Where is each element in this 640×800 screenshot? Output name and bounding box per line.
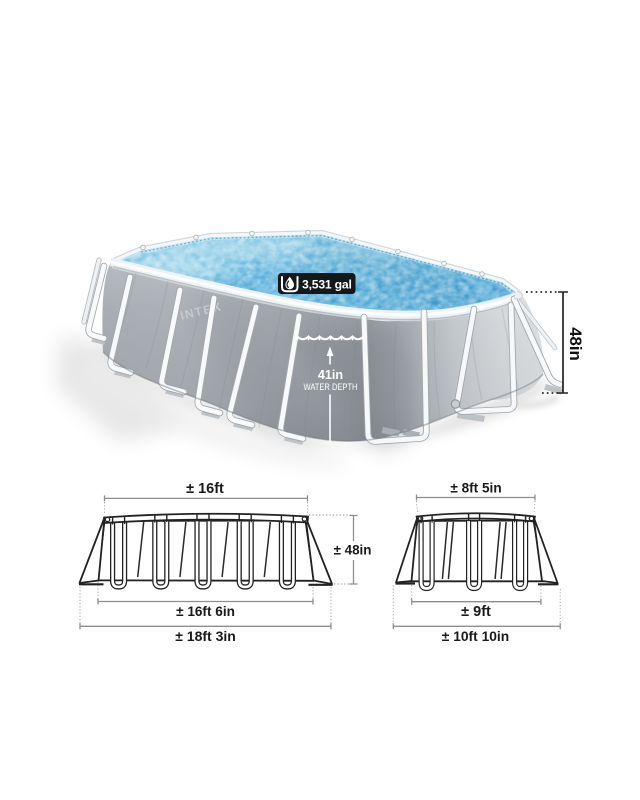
svg-text:± 9ft: ± 9ft xyxy=(461,604,491,620)
svg-text:48in: 48in xyxy=(566,327,585,361)
svg-text:WATER DEPTH: WATER DEPTH xyxy=(304,382,358,392)
svg-text:± 10ft 10in: ± 10ft 10in xyxy=(442,629,509,644)
svg-text:± 16ft 6in: ± 16ft 6in xyxy=(176,604,235,619)
svg-text:3,531 gal: 3,531 gal xyxy=(302,278,352,292)
svg-text:± 48in: ± 48in xyxy=(334,543,372,558)
svg-text:± 8ft 5in: ± 8ft 5in xyxy=(450,481,501,496)
svg-text:± 16ft: ± 16ft xyxy=(186,481,224,497)
svg-text:41in: 41in xyxy=(318,368,343,382)
svg-text:± 18ft 3in: ± 18ft 3in xyxy=(175,628,236,644)
